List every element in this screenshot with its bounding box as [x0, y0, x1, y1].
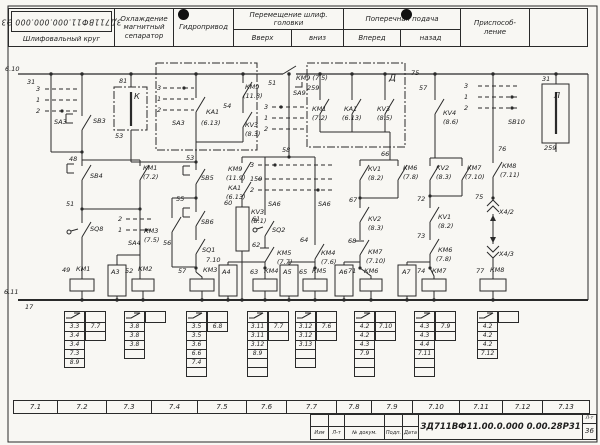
contact-ref-cell: 7.12: [477, 349, 498, 359]
schematic-label: 63: [250, 269, 258, 276]
schematic-label: 55: [176, 196, 184, 203]
schematic-label: 3: [464, 83, 468, 90]
schematic-label: КМ5: [277, 250, 291, 257]
contact-ref-table: 3.37.73.43.47.38.9: [64, 311, 106, 368]
schematic-label: 52: [125, 268, 133, 275]
stamp-box: ЗД711ВФ11.000.000.000 Э3: [11, 11, 112, 32]
schematic-sheet: ЗД711ВФ11.000.000.000 Э3 Шлифовальный кр…: [0, 0, 600, 445]
schematic-label: (7.8): [403, 174, 418, 181]
zone-cell: 7.1: [13, 400, 58, 414]
schematic-label: 51: [66, 201, 74, 208]
schematic-label: А5: [283, 269, 292, 276]
schematic-label: КМ6: [403, 165, 417, 172]
schematic-label: КМ8: [502, 163, 516, 170]
schematic-label: (7.10): [366, 258, 386, 265]
contact-ref-cell: [354, 367, 375, 377]
schematic-label: 72: [417, 196, 425, 203]
contact-ref-cell: [414, 367, 435, 377]
schematic-label: КV3: [377, 106, 390, 113]
nc-contact-icon: [477, 311, 495, 320]
schematic-label: 3: [264, 104, 268, 111]
titleblock-col-izm: Изм: [310, 426, 329, 440]
contact-ref-cell: [124, 349, 145, 359]
titleblock-col-podp: Подп.: [384, 426, 403, 440]
contact-ref-cell: [316, 331, 337, 341]
zone-cell: 7.4: [151, 400, 198, 414]
header-cell-down: вниз: [291, 29, 344, 47]
schematic-label: КА1: [344, 106, 357, 113]
zone-cell: 7.6: [246, 400, 287, 414]
schematic-label: SQ1: [202, 247, 215, 254]
schematic-label: КМ4: [321, 250, 335, 257]
schematic-label: 31: [542, 76, 550, 83]
nc-contact-icon: [64, 311, 82, 320]
schematic-label: 1: [36, 97, 40, 104]
nc-contact-icon: [247, 311, 265, 320]
schematic-label: (11.8): [243, 93, 263, 100]
schematic-label: КМ9: [228, 166, 242, 173]
schematic-label: 54: [223, 103, 231, 110]
header-cell-forward: Вперед: [343, 29, 401, 47]
zone-cell: 7.3: [106, 400, 152, 414]
schematic-label: 53: [115, 133, 123, 140]
stamp-text: ЗД711ВФ11.000.000.000 Э3: [1, 18, 122, 26]
schematic-label: SA4: [128, 240, 141, 247]
schematic-label: 2: [118, 216, 122, 223]
schematic-label: 6.10: [5, 66, 19, 73]
schematic-label: (8.2): [438, 223, 453, 230]
schematic-label: 2: [157, 107, 161, 114]
schematic-label: 51: [268, 80, 276, 87]
ink-blob: [401, 9, 412, 20]
schematic-label: 61: [252, 216, 260, 223]
schematic-label: SB10: [508, 119, 525, 126]
schematic-label: 67: [349, 197, 357, 204]
header-cell-empty: [529, 8, 588, 47]
schematic-label: 3: [36, 86, 40, 93]
schematic-label: КМ3: [144, 228, 158, 235]
schematic-label: КМ7: [368, 249, 382, 256]
schematic-label: (7.11): [500, 172, 520, 179]
schematic-label: 2: [464, 105, 468, 112]
schematic-label: А3: [111, 269, 120, 276]
titleblock-col-list: Л-т: [328, 426, 345, 440]
schematic-label: SA9: [293, 90, 306, 97]
nc-contact-icon: [186, 311, 204, 320]
ink-blob: [178, 9, 189, 20]
schematic-label: 77: [476, 268, 484, 275]
header-cell-up: Вверх: [233, 29, 292, 47]
schematic-label: 57: [419, 85, 427, 92]
schematic-label: (8.6): [443, 119, 458, 126]
schematic-label: (7.6): [321, 259, 336, 266]
schematic-label: 50: [254, 176, 262, 183]
schematic-label: (7.8): [436, 256, 451, 263]
schematic-label: (8.3): [368, 225, 383, 232]
contact-ref-table: 4.27.104.24.37.9: [354, 311, 396, 377]
schematic-label: КМ5: [312, 268, 326, 275]
schematic-label: КА1: [228, 185, 241, 192]
zone-cell: 7.2: [57, 400, 107, 414]
contact-ref-cell: 8.9: [64, 358, 85, 368]
schematic-label: Х4/3: [499, 251, 514, 258]
zone-cell: 7.9: [371, 400, 413, 414]
schematic-label: SA3: [172, 120, 185, 127]
schematic-label: (7.2): [143, 174, 158, 181]
contact-ref-table: 3.127.63.123.13: [295, 311, 337, 368]
header-cell-grinding-wheel: ЗД711ВФ11.000.000.000 Э3 Шлифовальный кр…: [8, 8, 115, 47]
schematic-label: (7.2): [312, 115, 327, 122]
nc-contact-icon: [295, 311, 313, 320]
schematic-label: SA3: [54, 119, 67, 126]
schematic-label: 48: [69, 156, 77, 163]
zone-cell: 7.13: [542, 400, 590, 414]
zone-cell: 7.5: [197, 400, 247, 414]
schematic-label: 6.11: [4, 289, 18, 296]
schematic-label: 2: [264, 126, 268, 133]
schematic-label: (8.2): [368, 175, 383, 182]
schematic-label: (8.3): [245, 131, 260, 138]
schematic-label: 57: [178, 268, 186, 275]
schematic-label: SB4: [90, 173, 103, 180]
schematic-label: КМ6: [438, 247, 452, 254]
schematic-label: 1: [250, 176, 254, 183]
schematic-label: КМ2: [138, 266, 152, 273]
schematic-label: 64: [300, 237, 308, 244]
schematic-label: КV1: [438, 214, 451, 221]
schematic-label: Л: [554, 92, 560, 100]
contact-ref-table: 4.37.94.34.47.11: [414, 311, 456, 377]
zone-cell: 7.10: [412, 400, 460, 414]
schematic-label: SQ2: [272, 227, 285, 234]
contact-ref-cell: [85, 331, 106, 341]
schematic-label: 1: [264, 115, 268, 122]
schematic-label: 56: [163, 240, 171, 247]
schematic-label: КМ7: [432, 268, 446, 275]
header-label-grinding-wheel: Шлифовальный круг: [9, 32, 114, 46]
schematic-label: КМ7: [467, 165, 481, 172]
nc-contact-icon: [124, 311, 142, 320]
schematic-label: КМ4: [264, 268, 278, 275]
schematic-label: КМ1: [76, 266, 90, 273]
zone-cell: 7.7: [286, 400, 337, 414]
schematic-label: (7.7): [277, 259, 292, 266]
contact-ref-cell: [295, 358, 316, 368]
schematic-label: КА1: [206, 109, 219, 116]
nc-contact-icon: [414, 311, 432, 320]
schematic-label: КМ1: [143, 165, 157, 172]
schematic-label: 73: [417, 233, 425, 240]
circuit-linework: [0, 0, 600, 445]
schematic-label: SB6: [201, 219, 214, 226]
schematic-label: КV3: [245, 122, 258, 129]
schematic-label: 49: [62, 267, 70, 274]
schematic-label: SA6: [268, 201, 281, 208]
schematic-label: (8.5): [377, 115, 392, 122]
schematic-label: КМ9: [245, 84, 259, 91]
zone-cell: 7.8: [336, 400, 372, 414]
schematic-label: 60: [224, 200, 232, 207]
schematic-label: КV4: [443, 110, 456, 117]
schematic-label: 74: [417, 268, 425, 275]
schematic-label: А7: [402, 269, 411, 276]
schematic-label: 259: [544, 145, 556, 152]
schematic-label: Х4/2: [499, 209, 514, 216]
contact-ref-cell: [435, 331, 456, 341]
header-cell-fixture: Приспособ- ление: [460, 8, 530, 47]
schematic-label: 17: [25, 304, 33, 311]
schematic-label: 3: [250, 162, 254, 169]
schematic-label: 1: [464, 94, 468, 101]
schematic-label: 2: [250, 187, 254, 194]
schematic-label: КV2: [368, 216, 381, 223]
titleblock-doc-number: ЗД711ВФ11.00.0.000 0.00.28Р31: [418, 414, 583, 440]
schematic-label: 76: [498, 146, 506, 153]
contact-ref-table: 3.83.83.8: [124, 311, 166, 359]
schematic-label: (6.13): [201, 120, 221, 127]
schematic-label: SB5: [201, 175, 214, 182]
schematic-label: К: [134, 93, 140, 101]
schematic-label: А6: [339, 269, 348, 276]
header-cell-cooling: Охлаждение магнитный сепаратор: [114, 8, 174, 47]
schematic-label: КМ9 (7.5): [296, 75, 328, 82]
contact-ref-table: 3.117.73.113.128.9: [247, 311, 289, 377]
nc-contact-header: [498, 311, 519, 323]
schematic-label: SA6: [318, 201, 331, 208]
header-cell-head-movement: Перемещение шлиф. головки: [233, 8, 344, 30]
contact-ref-cell: [247, 367, 268, 377]
zone-cell: 7.12: [502, 400, 543, 414]
contact-ref-cell: 6.8: [207, 322, 228, 332]
schematic-label: 66: [381, 151, 389, 158]
schematic-label: 65: [299, 269, 307, 276]
titleblock-sheet-number: 36: [582, 423, 597, 440]
schematic-label: А4: [222, 269, 231, 276]
schematic-label: 71: [348, 268, 356, 275]
schematic-label: SB3: [93, 118, 106, 125]
schematic-label: (11.9): [226, 175, 246, 182]
zone-cell: 7.11: [459, 400, 503, 414]
schematic-label: (7.5): [144, 237, 159, 244]
schematic-label: SQ8: [90, 226, 103, 233]
contact-ref-table: 3.56.83.53.66.67.4: [186, 311, 228, 377]
contact-ref-cell: [186, 367, 207, 377]
schematic-label: 81: [119, 78, 127, 85]
schematic-label: (8.3): [436, 174, 451, 181]
schematic-label: 3: [157, 85, 161, 92]
schematic-label: 68: [348, 238, 356, 245]
schematic-label: Д: [389, 75, 396, 84]
schematic-label: 58: [282, 147, 290, 154]
schematic-label: КV2: [436, 165, 449, 172]
schematic-label: (7.10): [465, 174, 485, 181]
schematic-label: 2: [36, 108, 40, 115]
schematic-label: 31: [27, 79, 35, 86]
contact-ref-table: 4.24.24.27.12: [477, 311, 519, 359]
schematic-label: 53: [186, 155, 194, 162]
titleblock-col-data: Дата: [402, 426, 419, 440]
schematic-label: КМ3: [203, 267, 217, 274]
nc-contact-icon: [354, 311, 372, 320]
schematic-label: КV1: [368, 166, 381, 173]
schematic-label: 75: [411, 70, 419, 77]
contact-ref-cell: [375, 331, 396, 341]
contact-ref-cell: [268, 331, 289, 341]
titleblock-col-docnum: № докум.: [344, 426, 385, 440]
schematic-label: 62: [252, 242, 260, 249]
schematic-label: 7.10: [206, 257, 220, 264]
schematic-label: 75: [475, 194, 483, 201]
schematic-label: КМ8: [490, 267, 504, 274]
schematic-label: (6.13): [342, 115, 362, 122]
header-cell-back: назад: [400, 29, 461, 47]
nc-contact-header: [145, 311, 166, 323]
schematic-label: 259: [307, 85, 319, 92]
schematic-label: 1: [118, 227, 122, 234]
schematic-label: КМ1: [312, 106, 326, 113]
schematic-label: 1: [157, 96, 161, 103]
schematic-label: КМ6: [364, 268, 378, 275]
